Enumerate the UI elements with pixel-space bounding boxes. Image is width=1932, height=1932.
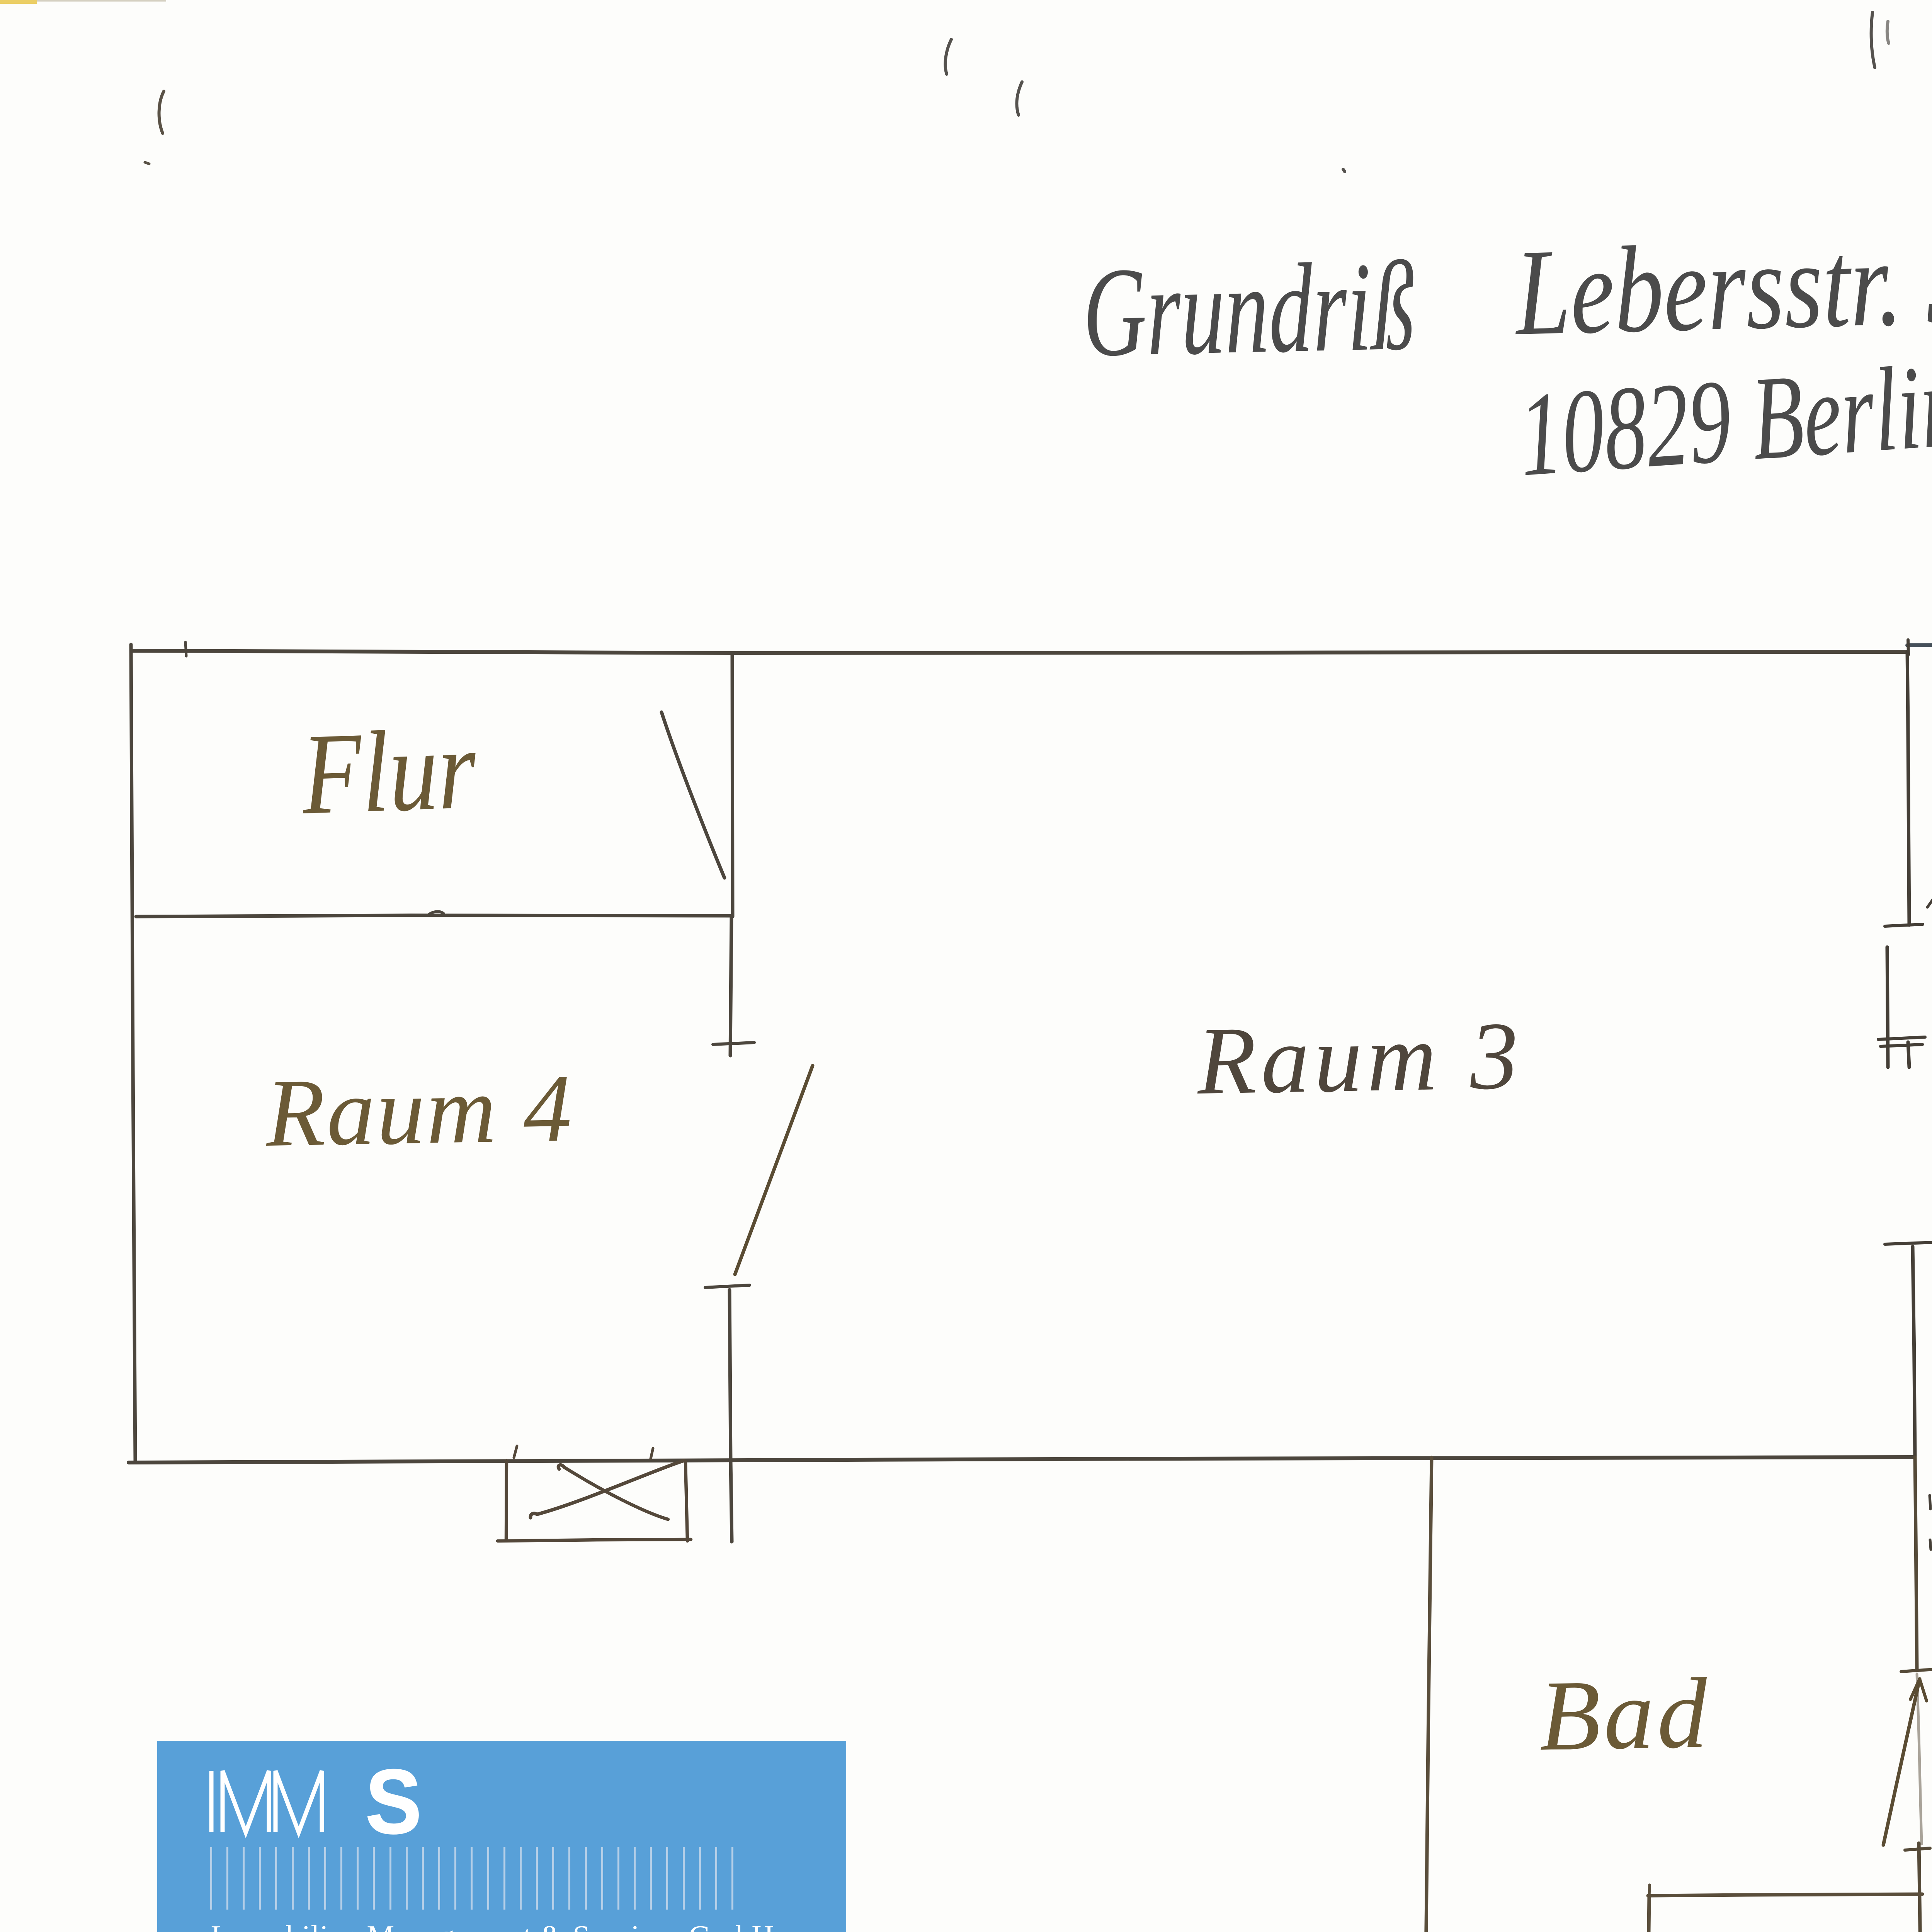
svg-text:Lebersstr. 30: Lebersstr. 30 (1512, 211, 1932, 362)
svg-text:Raum 3: Raum 3 (1196, 1002, 1524, 1115)
svg-text:10829 Berlin: 10829 Berlin (1515, 338, 1932, 501)
svg-text:Bad: Bad (1538, 1657, 1711, 1772)
svg-text:S: S (366, 1751, 422, 1853)
svg-text:Flur: Flur (298, 704, 480, 838)
svg-text:Immobilien Management & Servic: Immobilien Management & Services GmbH (211, 1920, 774, 1932)
svg-text:Gäste: Gäste (1689, 1930, 1862, 1932)
svg-text:Grundriß: Grundriß (1082, 235, 1417, 383)
svg-text:Raum 4: Raum 4 (264, 1054, 574, 1167)
